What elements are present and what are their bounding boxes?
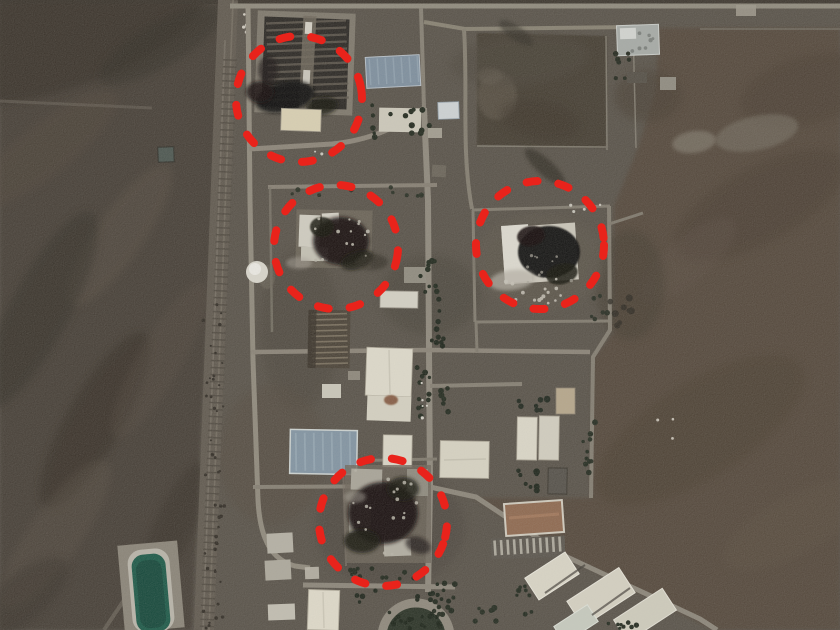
- photo-grain: [0, 0, 840, 630]
- annotated-satellite-view: [0, 0, 840, 630]
- satellite-image: [0, 0, 840, 630]
